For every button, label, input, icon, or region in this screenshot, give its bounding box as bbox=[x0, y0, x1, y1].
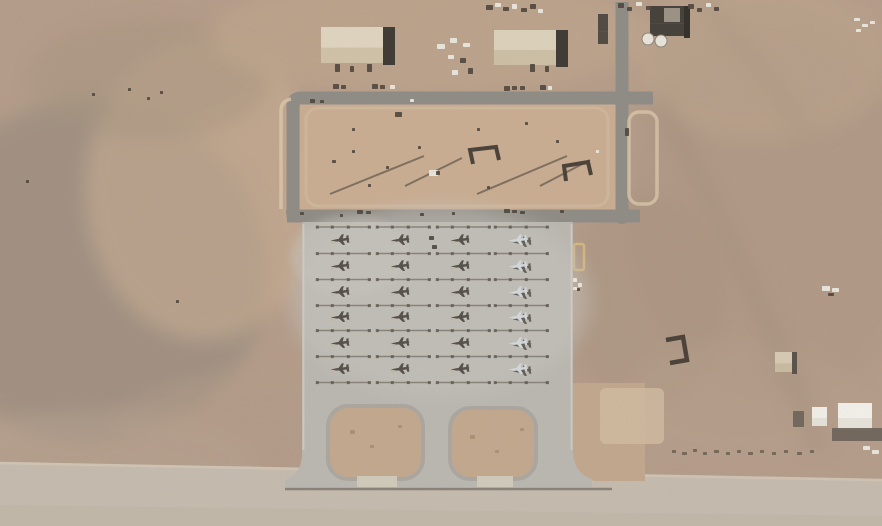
photo-grain-overlay bbox=[0, 0, 882, 526]
satellite-scene-svg bbox=[0, 0, 882, 526]
satellite-image-airbase bbox=[0, 0, 882, 526]
